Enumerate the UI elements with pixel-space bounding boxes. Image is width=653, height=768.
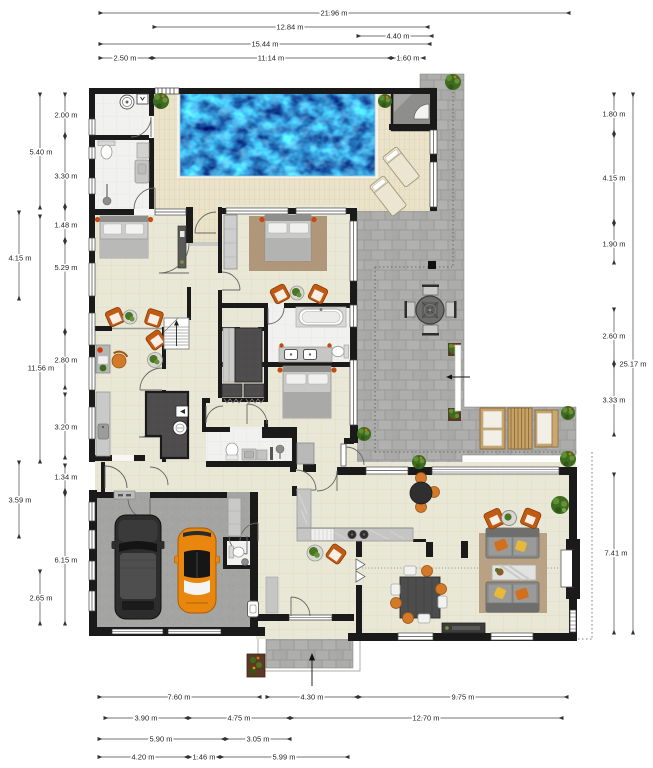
svg-text:3.05 m: 3.05 m <box>247 735 270 744</box>
svg-text:21.96 m: 21.96 m <box>320 9 347 18</box>
svg-text:3.30 m: 3.30 m <box>55 172 78 181</box>
svg-text:3.90 m: 3.90 m <box>135 714 158 723</box>
svg-text:2.65 m: 2.65 m <box>30 594 53 603</box>
svg-text:1.34 m: 1.34 m <box>55 473 78 482</box>
svg-text:25.17 m: 25.17 m <box>619 360 646 369</box>
svg-text:7.41 m: 7.41 m <box>605 549 628 558</box>
svg-text:3.59 m: 3.59 m <box>9 496 32 505</box>
svg-text:1.60 m: 1.60 m <box>397 54 420 63</box>
svg-text:11.56 m: 11.56 m <box>28 364 55 373</box>
svg-text:4.40 m: 4.40 m <box>387 32 410 41</box>
svg-text:4.75 m: 4.75 m <box>228 714 251 723</box>
svg-text:2.50 m: 2.50 m <box>114 54 137 63</box>
svg-text:1.48 m: 1.48 m <box>55 221 78 230</box>
svg-text:3.20 m: 3.20 m <box>55 423 78 432</box>
svg-text:11.14 m: 11.14 m <box>258 54 285 63</box>
svg-text:6.15 m: 6.15 m <box>55 556 78 565</box>
svg-text:3.33 m: 3.33 m <box>603 396 626 405</box>
svg-text:5.40 m: 5.40 m <box>30 148 53 157</box>
svg-text:9.75 m: 9.75 m <box>452 693 475 702</box>
svg-text:2.00 m: 2.00 m <box>55 111 78 120</box>
svg-text:5.99 m: 5.99 m <box>273 753 296 762</box>
svg-text:1.46 m: 1.46 m <box>193 753 216 762</box>
svg-text:12.70 m: 12.70 m <box>412 714 439 723</box>
svg-text:1.80 m: 1.80 m <box>603 110 626 119</box>
svg-text:5.29 m: 5.29 m <box>55 263 78 272</box>
svg-text:4.30 m: 4.30 m <box>301 693 324 702</box>
svg-text:2.60 m: 2.60 m <box>603 332 626 341</box>
svg-text:15.44 m: 15.44 m <box>251 40 278 49</box>
svg-text:4.15 m: 4.15 m <box>603 174 626 183</box>
svg-text:5.90 m: 5.90 m <box>150 735 173 744</box>
svg-text:12.84 m: 12.84 m <box>276 23 303 32</box>
svg-text:2.80 m: 2.80 m <box>55 356 78 365</box>
svg-text:1.90 m: 1.90 m <box>603 240 626 249</box>
svg-text:7.60 m: 7.60 m <box>168 693 191 702</box>
svg-text:4.15 m: 4.15 m <box>9 254 32 263</box>
svg-text:4.20 m: 4.20 m <box>132 753 155 762</box>
